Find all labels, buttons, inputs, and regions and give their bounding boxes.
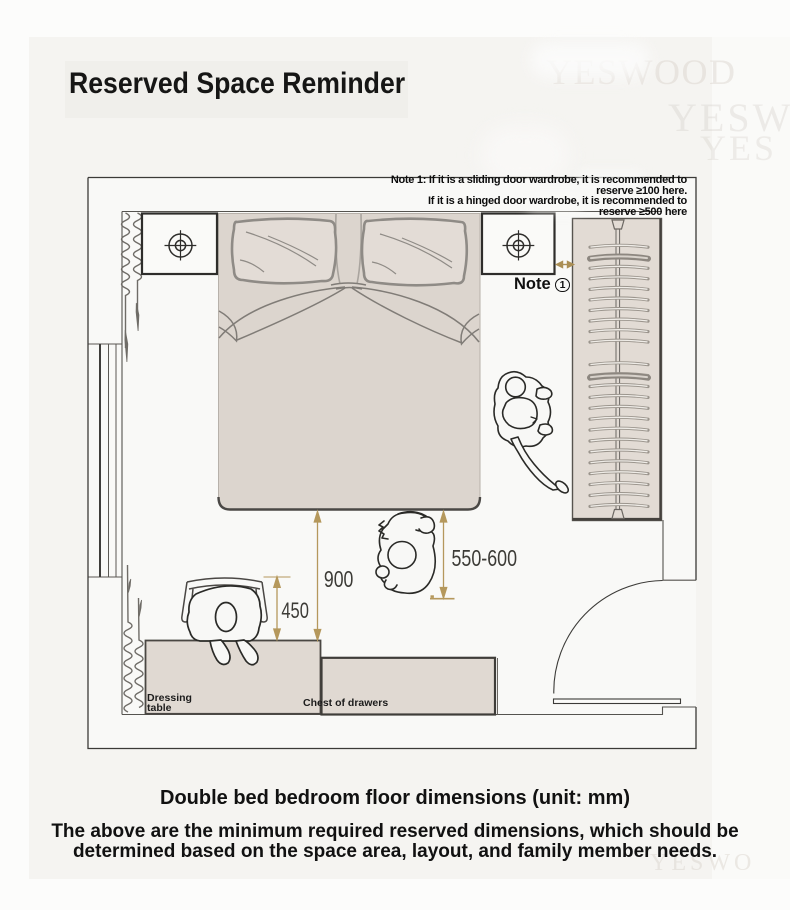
svg-text:450: 450 xyxy=(281,598,309,623)
svg-text:900: 900 xyxy=(324,566,354,592)
svg-text:550-600: 550-600 xyxy=(452,545,518,571)
